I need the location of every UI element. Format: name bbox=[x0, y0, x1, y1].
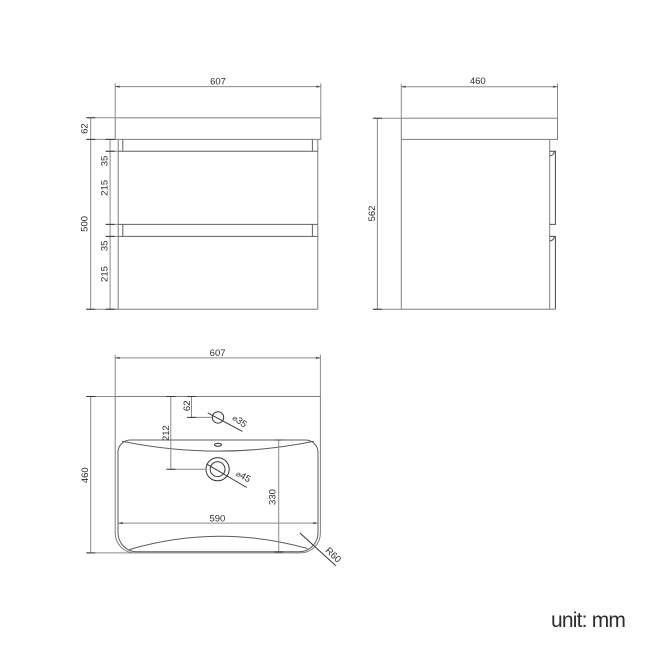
svg-text:330: 330 bbox=[268, 489, 279, 505]
svg-text:590: 590 bbox=[209, 513, 225, 524]
svg-text:460: 460 bbox=[80, 467, 91, 483]
svg-text:500: 500 bbox=[80, 216, 91, 232]
svg-text:35: 35 bbox=[100, 156, 111, 167]
svg-text:607: 607 bbox=[210, 348, 226, 359]
svg-text:562: 562 bbox=[367, 206, 378, 222]
svg-text:62: 62 bbox=[182, 401, 193, 412]
svg-text:212: 212 bbox=[161, 425, 172, 441]
svg-text:607: 607 bbox=[210, 76, 226, 87]
svg-text:215: 215 bbox=[100, 266, 111, 282]
svg-text:460: 460 bbox=[470, 76, 486, 87]
svg-text:unit: mm: unit: mm bbox=[551, 609, 625, 632]
svg-text:62: 62 bbox=[80, 123, 91, 134]
svg-text:215: 215 bbox=[100, 180, 111, 196]
svg-text:35: 35 bbox=[100, 241, 111, 252]
